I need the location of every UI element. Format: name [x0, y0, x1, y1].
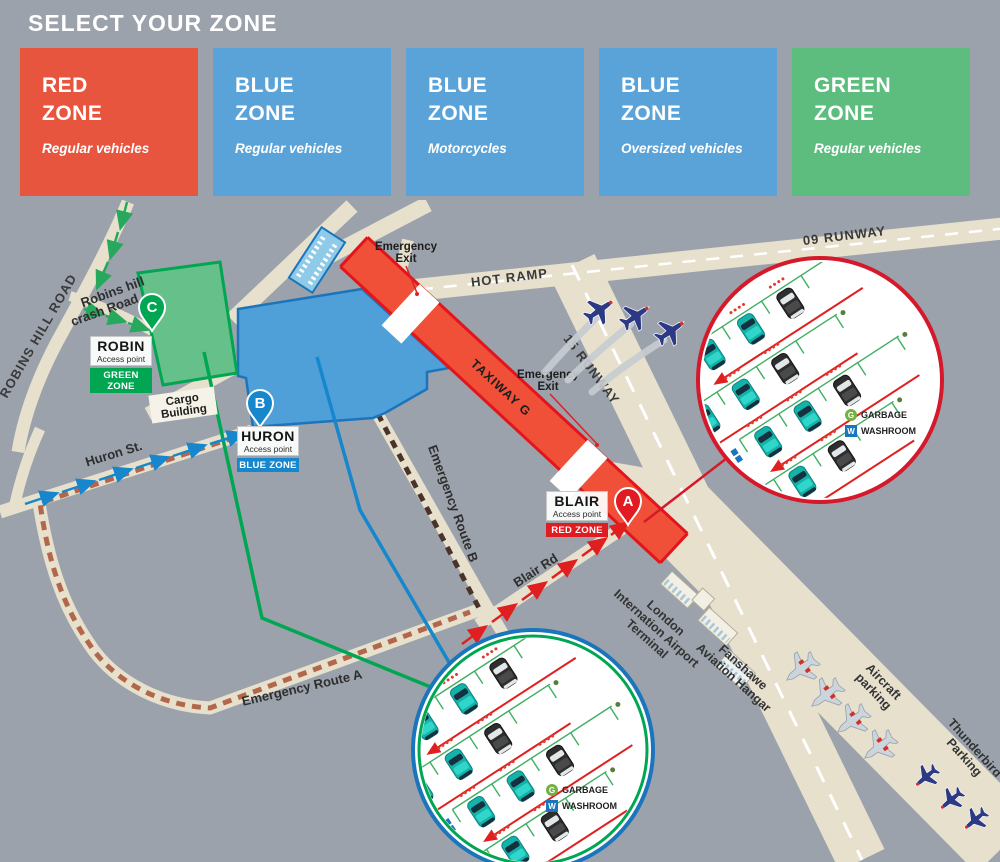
zone-selection-page: { "title": "SELECT YOUR ZONE", "zones": … — [0, 0, 1000, 862]
svg-text:G: G — [549, 786, 555, 795]
access-point-robin[interactable]: ROBIN Access point GREEN ZONE — [90, 336, 152, 393]
access-point-zone-badge: GREEN ZONE — [90, 368, 152, 393]
access-point-panel: BLAIR Access point — [546, 491, 608, 521]
zone-card-blue-motorcycles[interactable]: BLUEZONE Motorcycles — [406, 48, 584, 196]
svg-text:W: W — [847, 427, 855, 436]
svg-text:Emergency: Emergency — [375, 241, 438, 253]
airport-map: TAXIWAY G Cargo Building Emergency Ex — [0, 200, 1000, 862]
zone-card-title: REDZONE — [42, 72, 188, 127]
cargo-building-label: Cargo Building — [148, 387, 217, 424]
svg-text:WASHROOM: WASHROOM — [562, 801, 617, 811]
access-point-blair[interactable]: BLAIR Access point RED ZONE — [546, 491, 608, 537]
zone-card-green[interactable]: GREENZONE Regular vehicles — [792, 48, 970, 196]
zone-card-title: BLUEZONE — [621, 72, 767, 127]
zone-card-title: BLUEZONE — [428, 72, 574, 127]
legend-garbage: G GARBAGE — [845, 409, 907, 421]
access-point-sub: Access point — [92, 354, 150, 364]
zone-card-blue-regular[interactable]: BLUEZONE Regular vehicles — [213, 48, 391, 196]
svg-text:W: W — [548, 802, 556, 811]
access-point-huron[interactable]: HURON Access point BLUE ZONE — [237, 426, 299, 472]
access-point-panel: ROBIN Access point — [90, 336, 152, 366]
zone-card-subtitle: Motorcycles — [428, 141, 574, 156]
svg-text:WASHROOM: WASHROOM — [861, 426, 916, 436]
access-point-name: ROBIN — [92, 339, 150, 354]
svg-text:Exit: Exit — [537, 381, 558, 393]
legend-garbage: G GARBAGE — [546, 784, 608, 796]
access-point-panel: HURON Access point — [237, 426, 299, 456]
svg-text:A: A — [623, 493, 634, 510]
zone-card-red[interactable]: REDZONE Regular vehicles — [20, 48, 198, 196]
page-title: SELECT YOUR ZONE — [28, 10, 277, 37]
zone-card-subtitle: Regular vehicles — [235, 141, 381, 156]
access-point-zone-badge: RED ZONE — [546, 523, 608, 537]
zone-card-subtitle: Regular vehicles — [814, 141, 960, 156]
legend-washroom: W WASHROOM — [845, 425, 916, 437]
svg-text:Exit: Exit — [395, 253, 416, 265]
access-point-sub: Access point — [548, 509, 606, 519]
svg-text:B: B — [255, 395, 266, 412]
zone-card-blue-oversized[interactable]: BLUEZONE Oversized vehicles — [599, 48, 777, 196]
svg-text:GARBAGE: GARBAGE — [562, 785, 608, 795]
svg-text:C: C — [147, 299, 158, 316]
access-point-zone-badge: BLUE ZONE — [237, 458, 299, 472]
svg-text:G: G — [848, 411, 854, 420]
zone-card-subtitle: Regular vehicles — [42, 141, 188, 156]
access-point-sub: Access point — [239, 444, 297, 454]
access-point-name: BLAIR — [548, 494, 606, 509]
zone-cards: REDZONE Regular vehicles BLUEZONE Regula… — [20, 48, 970, 196]
access-point-name: HURON — [239, 429, 297, 444]
zone-card-subtitle: Oversized vehicles — [621, 141, 767, 156]
legend-washroom: W WASHROOM — [546, 800, 617, 812]
zone-card-title: GREENZONE — [814, 72, 960, 127]
zone-card-title: BLUEZONE — [235, 72, 381, 127]
svg-text:GARBAGE: GARBAGE — [861, 410, 907, 420]
